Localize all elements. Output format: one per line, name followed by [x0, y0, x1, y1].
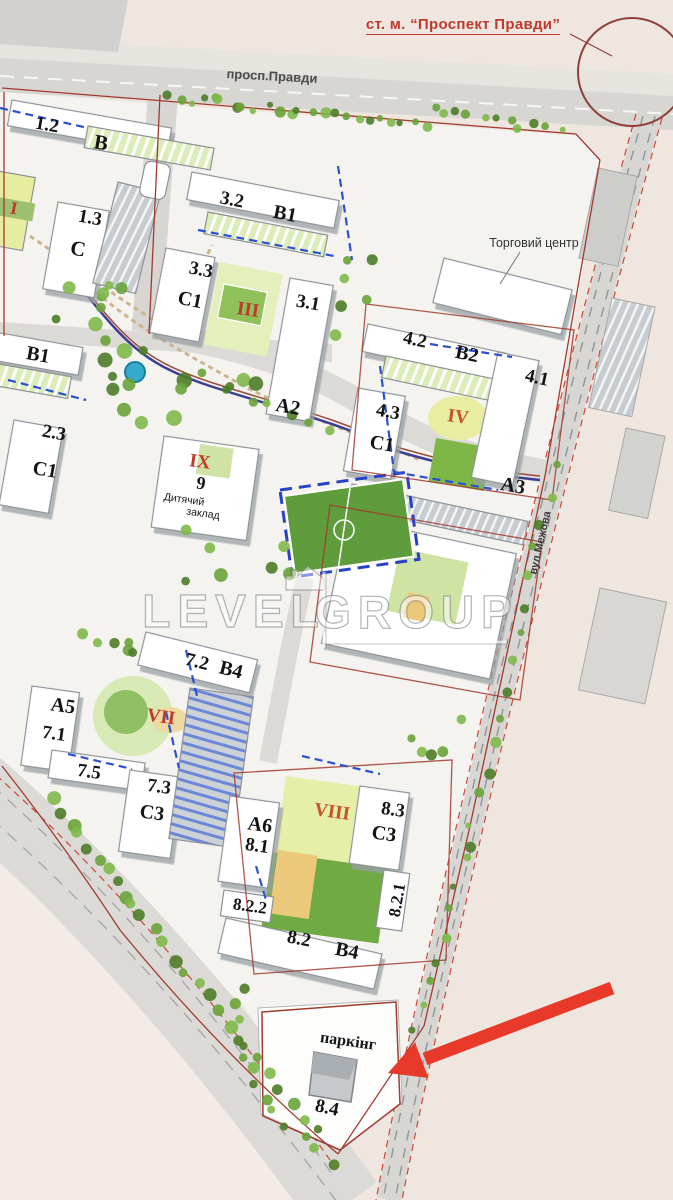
- map-graphics: [0, 0, 673, 1200]
- football-field: [280, 472, 419, 577]
- existing-block-topleft: [0, 0, 128, 52]
- site-plan-map: ст. м. “Проспект Правди” просп.Правди ву…: [0, 0, 673, 1200]
- building-8-3: [349, 786, 409, 870]
